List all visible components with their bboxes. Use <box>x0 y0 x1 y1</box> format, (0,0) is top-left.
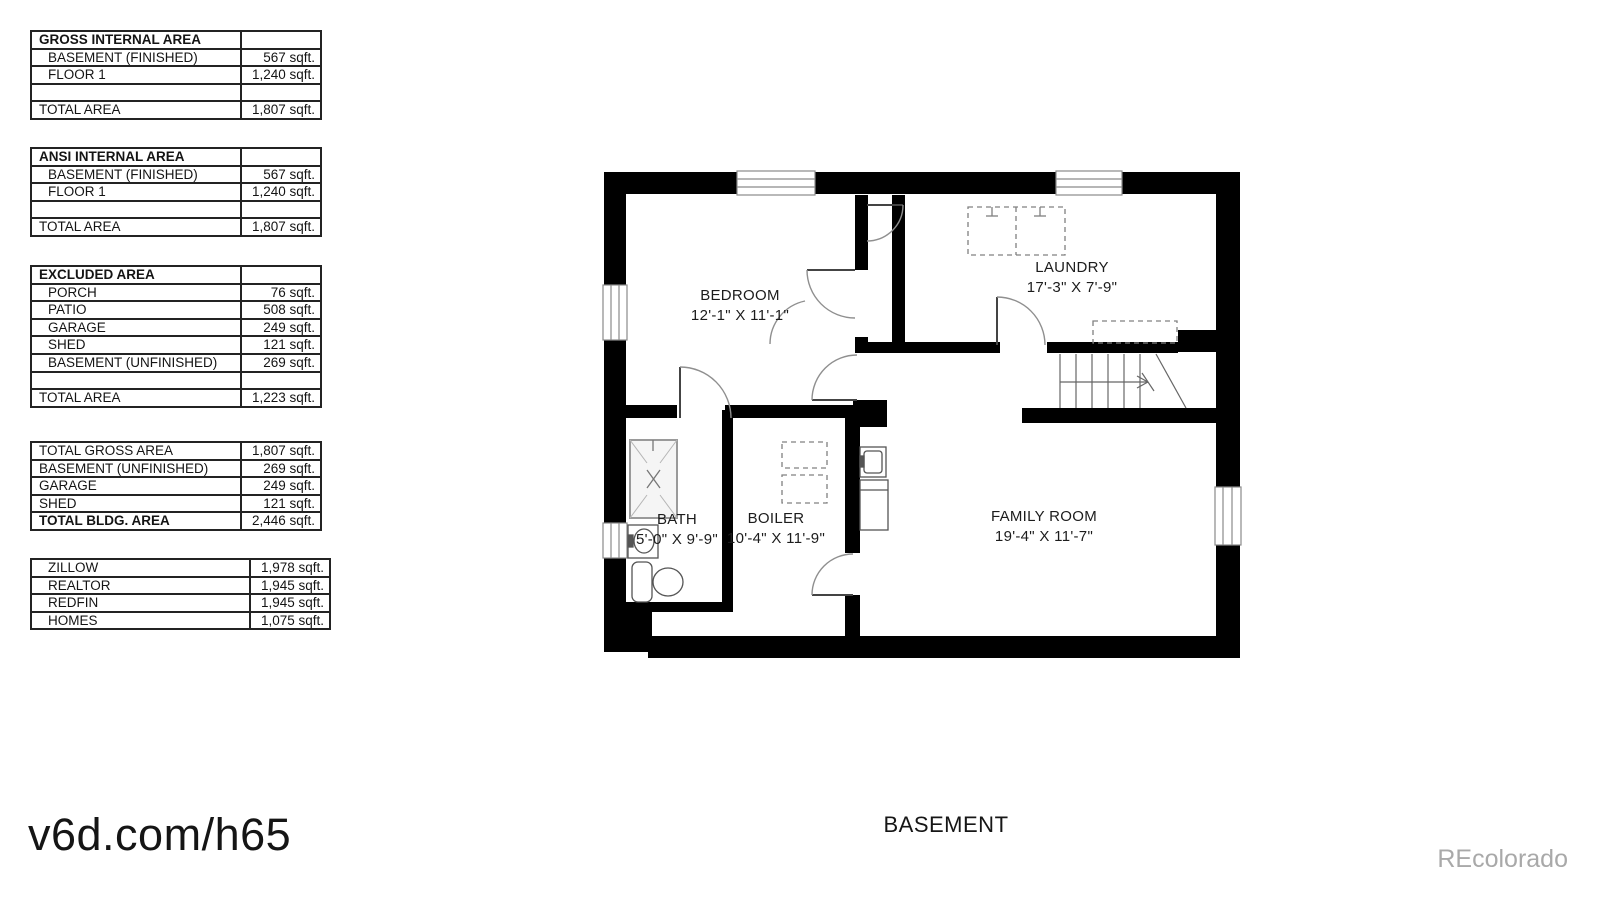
room-label-family-room: FAMILY ROOM 19'-4" X 11'-7" <box>964 507 1124 546</box>
row-label: TOTAL AREA <box>31 101 241 119</box>
wall-laundry-bottom <box>1047 342 1178 353</box>
row-value: 121 sqft. <box>241 336 321 354</box>
row-value: 567 sqft. <box>241 49 321 67</box>
row-value: 269 sqft. <box>241 354 321 372</box>
toilet <box>632 562 683 602</box>
row-value: 1,807 sqft. <box>241 218 321 236</box>
row-value: 121 sqft. <box>241 495 321 513</box>
wall-top <box>604 172 1240 194</box>
row-label: TOTAL AREA <box>31 389 241 407</box>
area-table-totals: TOTAL GROSS AREA1,807 sqft. BASEMENT (UN… <box>30 441 322 531</box>
row-label: REDFIN <box>31 594 250 612</box>
shower <box>630 440 677 518</box>
row-label: FLOOR 1 <box>31 66 241 84</box>
wall-bath-boiler <box>722 410 733 602</box>
wall-corner-block <box>853 400 887 427</box>
row-label: GARAGE <box>31 319 241 337</box>
row-label: PORCH <box>31 284 241 302</box>
row-label: ZILLOW <box>31 559 250 577</box>
row-value: 567 sqft. <box>241 166 321 184</box>
wall-boiler-top <box>725 405 853 418</box>
wall-stairwell-bottom <box>1022 408 1240 423</box>
row-label: PATIO <box>31 301 241 319</box>
row-value: 1,945 sqft. <box>250 594 330 612</box>
wall-stair-jog <box>1178 330 1240 352</box>
room-dims: 17'-3" X 7'-9" <box>992 278 1152 298</box>
row-value: 249 sqft. <box>241 477 321 495</box>
row-label: SHED <box>31 495 241 513</box>
stairs <box>1060 354 1186 408</box>
area-table-ansi: ANSI INTERNAL AREA BASEMENT (FINISHED)56… <box>30 147 322 237</box>
row-label <box>31 372 241 390</box>
room-dims: 10'-4" X 11'-9" <box>696 529 856 549</box>
row-value: 76 sqft. <box>241 284 321 302</box>
window-left-bedroom <box>603 285 627 340</box>
utility-sink <box>860 447 886 477</box>
row-value: 1,075 sqft. <box>250 612 330 630</box>
door-laundry <box>997 297 1045 345</box>
row-value <box>241 84 321 102</box>
row-value <box>241 372 321 390</box>
washer-dryer-dashed <box>968 207 1065 255</box>
window-right-family <box>1215 487 1241 545</box>
row-label: REALTOR <box>31 577 250 595</box>
row-label <box>31 201 241 219</box>
water-heater <box>860 480 888 530</box>
floor-title: BASEMENT <box>821 812 1071 838</box>
wall-hall-bottom <box>855 342 1000 353</box>
wall-right-upper <box>1216 172 1240 487</box>
utility-fixtures <box>860 447 888 530</box>
boiler-unit-dashed <box>782 442 827 468</box>
door-family-room <box>812 355 857 400</box>
row-label: HOMES <box>31 612 250 630</box>
wall-bath-bottom <box>626 602 733 612</box>
room-name: BEDROOM <box>660 286 820 306</box>
area-table-excluded: EXCLUDED AREA PORCH76 sqft. PATIO508 sqf… <box>30 265 322 408</box>
row-label: TOTAL AREA <box>31 218 241 236</box>
stair-winder <box>1156 354 1186 408</box>
room-name: FAMILY ROOM <box>964 507 1124 527</box>
room-dims: 19'-4" X 11'-7" <box>964 527 1124 547</box>
row-label: BASEMENT (UNFINISHED) <box>31 460 241 478</box>
row-label: BASEMENT (FINISHED) <box>31 166 241 184</box>
row-label <box>31 84 241 102</box>
row-label: SHED <box>31 336 241 354</box>
row-value: 1,945 sqft. <box>250 577 330 595</box>
row-value: 269 sqft. <box>241 460 321 478</box>
window-top-laundry <box>1056 171 1122 195</box>
row-label: BASEMENT (FINISHED) <box>31 49 241 67</box>
wall-bedroom-right-upper <box>855 195 868 270</box>
wall-left-upper <box>604 172 626 285</box>
windows <box>603 171 1241 558</box>
area-table-gross: GROSS INTERNAL AREA BASEMENT (FINISHED)5… <box>30 30 322 120</box>
table-title: ANSI INTERNAL AREA <box>31 148 241 166</box>
row-label: BASEMENT (UNFINISHED) <box>31 354 241 372</box>
table-title: EXCLUDED AREA <box>31 266 241 284</box>
wall-chase <box>892 195 905 342</box>
row-label: FLOOR 1 <box>31 183 241 201</box>
wall-left-mid <box>604 340 626 523</box>
brand-watermark: REcolorado <box>1437 845 1568 874</box>
row-value: 1,240 sqft. <box>241 183 321 201</box>
floor-plan: BEDROOM 12'-1" X 11'-1" LAUNDRY 17'-3" X… <box>588 158 1243 663</box>
room-label-boiler: BOILER 10'-4" X 11'-9" <box>696 509 856 548</box>
row-value: 1,223 sqft. <box>241 389 321 407</box>
room-label-bedroom: BEDROOM 12'-1" X 11'-1" <box>660 286 820 325</box>
stair-overhead-dashed <box>1093 321 1177 343</box>
site-watermark: v6d.com/h65 <box>28 810 291 860</box>
room-dims: 12'-1" X 11'-1" <box>660 306 820 326</box>
row-label: TOTAL BLDG. AREA <box>31 512 241 530</box>
row-label: GARAGE <box>31 477 241 495</box>
row-value <box>241 201 321 219</box>
row-value: 1,807 sqft. <box>241 101 321 119</box>
area-table-listings: ZILLOW1,978 sqft. REALTOR1,945 sqft. RED… <box>30 558 331 630</box>
boiler-unit-dashed <box>782 475 827 503</box>
row-value: 249 sqft. <box>241 319 321 337</box>
row-value: 1,807 sqft. <box>241 442 321 460</box>
room-name: BOILER <box>696 509 856 529</box>
wall-bedroom-bottom <box>605 405 677 418</box>
wall-right-lower <box>1216 545 1240 658</box>
row-value: 2,446 sqft. <box>241 512 321 530</box>
window-top-bedroom <box>737 171 815 195</box>
row-value: 1,978 sqft. <box>250 559 330 577</box>
row-value: 508 sqft. <box>241 301 321 319</box>
wall-boiler-right-lower <box>845 595 860 638</box>
table-title: GROSS INTERNAL AREA <box>31 31 241 49</box>
door-boiler <box>812 554 853 595</box>
row-value: 1,240 sqft. <box>241 66 321 84</box>
room-label-laundry: LAUNDRY 17'-3" X 7'-9" <box>992 258 1152 297</box>
room-name: LAUNDRY <box>992 258 1152 278</box>
wall-bottom <box>648 636 1240 658</box>
appliances <box>782 207 1177 503</box>
floor-plan-drawing <box>588 158 1243 663</box>
row-label: TOTAL GROSS AREA <box>31 442 241 460</box>
